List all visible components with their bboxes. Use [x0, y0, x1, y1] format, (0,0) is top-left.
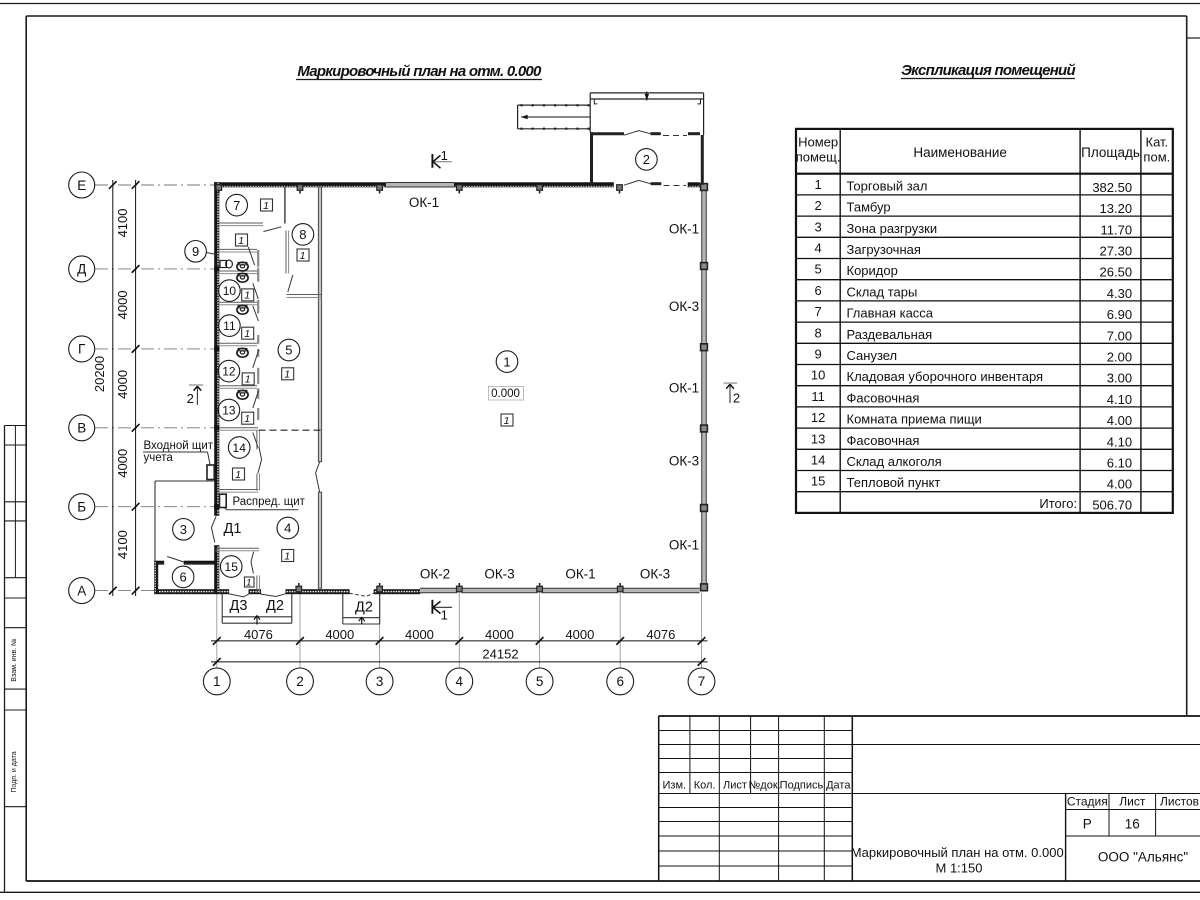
- svg-text:4100: 4100: [115, 208, 130, 237]
- svg-text:8: 8: [814, 325, 821, 340]
- svg-text:9: 9: [814, 347, 821, 362]
- svg-text:4000: 4000: [485, 627, 514, 642]
- svg-text:26.50: 26.50: [1100, 265, 1133, 280]
- svg-text:382.50: 382.50: [1092, 180, 1132, 195]
- svg-text:Фасовочная: Фасовочная: [847, 433, 920, 448]
- svg-text:пом.: пом.: [1143, 150, 1170, 165]
- svg-text:3.00: 3.00: [1107, 371, 1132, 386]
- svg-text:Р: Р: [1083, 817, 1092, 832]
- svg-text:Д2: Д2: [355, 600, 373, 616]
- svg-text:Стадия: Стадия: [1067, 795, 1108, 809]
- svg-text:4000: 4000: [115, 370, 130, 399]
- svg-text:ОК-1: ОК-1: [669, 222, 699, 237]
- svg-text:3: 3: [814, 219, 821, 234]
- svg-text:помещ.: помещ.: [796, 150, 841, 165]
- svg-text:1: 1: [441, 608, 448, 623]
- svg-text:4076: 4076: [244, 627, 273, 642]
- svg-text:1: 1: [238, 235, 244, 247]
- svg-text:учета: учета: [144, 452, 174, 464]
- svg-text:Наименование: Наименование: [913, 145, 1007, 160]
- svg-text:ОК-1: ОК-1: [565, 567, 595, 582]
- svg-text:ОК-3: ОК-3: [484, 567, 514, 582]
- svg-text:1: 1: [503, 354, 510, 369]
- svg-text:13.20: 13.20: [1100, 201, 1133, 216]
- svg-text:3: 3: [180, 522, 187, 537]
- svg-text:Маркировочный план на отм. 0.0: Маркировочный план на отм. 0.000,: [851, 845, 1068, 860]
- svg-text:1: 1: [441, 148, 448, 163]
- svg-text:Экспликация помещений: Экспликация помещений: [901, 62, 1075, 79]
- svg-text:Номер: Номер: [798, 135, 838, 150]
- svg-text:15: 15: [225, 560, 239, 574]
- svg-text:ОК-1: ОК-1: [669, 538, 699, 553]
- svg-text:Е: Е: [77, 178, 86, 193]
- svg-text:10: 10: [811, 368, 825, 383]
- svg-text:Склад тары: Склад тары: [847, 284, 918, 299]
- svg-text:М 1:150: М 1:150: [936, 861, 983, 876]
- svg-text:Комната приема пищи: Комната приема пищи: [847, 412, 982, 427]
- svg-text:ОК-1: ОК-1: [669, 381, 699, 396]
- svg-text:Изм.: Изм.: [663, 780, 687, 792]
- svg-text:Лист: Лист: [723, 780, 747, 792]
- svg-text:14: 14: [811, 453, 825, 468]
- svg-text:1: 1: [244, 413, 250, 425]
- svg-text:5: 5: [814, 262, 821, 277]
- svg-text:Раздевальная: Раздевальная: [847, 327, 933, 342]
- svg-text:4000: 4000: [405, 627, 434, 642]
- svg-text:9: 9: [192, 244, 199, 259]
- svg-text:4000: 4000: [565, 627, 594, 642]
- svg-text:Главная касса: Главная касса: [847, 306, 934, 321]
- svg-text:1: 1: [245, 374, 251, 386]
- svg-text:11: 11: [811, 389, 825, 404]
- svg-text:11: 11: [223, 319, 236, 333]
- svg-text:Тамбур: Тамбур: [847, 200, 891, 215]
- svg-text:15: 15: [811, 474, 825, 489]
- svg-text:ОК-3: ОК-3: [640, 567, 670, 582]
- svg-text:ОК-3: ОК-3: [669, 299, 699, 314]
- svg-text:Входной щит: Входной щит: [144, 440, 214, 452]
- svg-text:Г: Г: [78, 342, 86, 357]
- svg-text:16: 16: [1125, 817, 1140, 832]
- svg-text:Д3: Д3: [230, 598, 248, 614]
- svg-text:4.00: 4.00: [1107, 413, 1132, 428]
- svg-text:4100: 4100: [115, 530, 130, 559]
- svg-text:20200: 20200: [92, 356, 107, 392]
- svg-text:4.10: 4.10: [1107, 392, 1132, 407]
- svg-text:7.00: 7.00: [1107, 328, 1132, 343]
- svg-text:2: 2: [296, 674, 304, 689]
- svg-text:27.30: 27.30: [1100, 244, 1133, 259]
- svg-text:12: 12: [222, 364, 236, 378]
- svg-text:3: 3: [376, 674, 384, 689]
- svg-text:Подпись: Подпись: [780, 780, 824, 792]
- svg-text:2: 2: [814, 198, 821, 213]
- svg-text:1: 1: [284, 550, 290, 562]
- svg-text:6: 6: [616, 674, 624, 689]
- svg-text:В: В: [77, 421, 86, 436]
- svg-text:1: 1: [263, 200, 269, 212]
- svg-text:Д2: Д2: [266, 598, 284, 614]
- svg-text:Коридор: Коридор: [847, 263, 898, 278]
- svg-text:506.70: 506.70: [1092, 498, 1132, 513]
- svg-text:24152: 24152: [482, 647, 518, 662]
- svg-text:4000: 4000: [115, 449, 130, 478]
- svg-text:Зона разгрузки: Зона разгрузки: [847, 221, 938, 236]
- svg-text:2.00: 2.00: [1107, 350, 1132, 365]
- svg-text:4: 4: [456, 674, 464, 689]
- svg-text:Маркировочный план на отм. 0.0: Маркировочный план на отм. 0.000: [297, 63, 542, 80]
- svg-text:А: А: [77, 583, 86, 598]
- svg-text:Взам. инв. №: Взам. инв. №: [11, 638, 18, 681]
- svg-text:6: 6: [814, 283, 821, 298]
- svg-text:Санузел: Санузел: [847, 348, 898, 363]
- svg-text:Склад алкоголя: Склад алкоголя: [847, 454, 942, 469]
- svg-text:Подп. и дата: Подп. и дата: [11, 751, 18, 792]
- svg-text:6.10: 6.10: [1107, 456, 1132, 471]
- svg-text:2: 2: [733, 391, 740, 406]
- svg-text:13: 13: [222, 403, 236, 417]
- svg-text:1: 1: [284, 369, 290, 381]
- svg-text:Дата: Дата: [826, 780, 851, 792]
- svg-text:Распред. щит: Распред. щит: [233, 496, 306, 508]
- svg-text:4: 4: [814, 241, 821, 256]
- svg-text:1: 1: [246, 577, 251, 588]
- svg-text:Б: Б: [77, 500, 86, 515]
- svg-text:Д1: Д1: [224, 521, 242, 537]
- svg-text:12: 12: [811, 410, 825, 425]
- svg-text:2: 2: [643, 152, 650, 167]
- svg-text:4076: 4076: [646, 627, 675, 642]
- svg-text:2: 2: [187, 391, 194, 406]
- svg-text:Фасовочная: Фасовочная: [847, 390, 920, 405]
- svg-text:4000: 4000: [115, 290, 130, 319]
- svg-text:Кат.: Кат.: [1146, 135, 1169, 150]
- svg-text:Площадь: Площадь: [1081, 145, 1140, 160]
- svg-text:5: 5: [285, 343, 292, 358]
- svg-text:0.000: 0.000: [491, 388, 520, 400]
- svg-text:6: 6: [179, 570, 186, 585]
- svg-text:Кладовая уборочного инвентаря: Кладовая уборочного инвентаря: [847, 369, 1044, 384]
- svg-text:Загрузочная: Загрузочная: [847, 242, 921, 257]
- svg-text:Листов: Листов: [1160, 795, 1199, 809]
- svg-text:1: 1: [244, 328, 250, 340]
- svg-text:6.90: 6.90: [1107, 307, 1132, 322]
- svg-text:8: 8: [299, 227, 306, 242]
- svg-text:5: 5: [536, 674, 544, 689]
- svg-text:Тепловой пункт: Тепловой пункт: [847, 475, 941, 490]
- svg-text:Итого:: Итого:: [1039, 496, 1077, 511]
- svg-text:ОК-3: ОК-3: [669, 454, 699, 469]
- svg-text:Кол.: Кол.: [694, 780, 716, 792]
- svg-text:Лист: Лист: [1119, 795, 1146, 809]
- svg-text:1: 1: [235, 469, 241, 481]
- svg-text:4000: 4000: [325, 627, 354, 642]
- svg-text:13: 13: [811, 431, 825, 446]
- svg-text:ООО "Альянс": ООО "Альянс": [1098, 850, 1188, 865]
- svg-text:4.10: 4.10: [1107, 434, 1132, 449]
- svg-text:11.70: 11.70: [1101, 222, 1133, 237]
- svg-text:10: 10: [223, 284, 237, 298]
- svg-text:ОК-2: ОК-2: [420, 567, 450, 582]
- svg-text:ОК-1: ОК-1: [409, 195, 439, 210]
- svg-text:1: 1: [244, 290, 250, 302]
- svg-text:7: 7: [814, 304, 821, 319]
- svg-text:№док.: №док.: [748, 780, 780, 792]
- svg-text:1: 1: [504, 415, 510, 427]
- svg-text:Торговый зал: Торговый зал: [847, 178, 928, 193]
- svg-text:Д: Д: [77, 262, 86, 277]
- svg-text:14: 14: [233, 441, 247, 455]
- svg-text:1: 1: [814, 177, 821, 192]
- svg-text:4.30: 4.30: [1107, 286, 1132, 301]
- svg-text:4.00: 4.00: [1107, 477, 1132, 492]
- svg-text:7: 7: [233, 198, 240, 213]
- svg-text:1: 1: [213, 674, 221, 689]
- svg-text:4: 4: [284, 521, 291, 536]
- svg-text:1: 1: [300, 250, 306, 262]
- svg-text:7: 7: [698, 674, 706, 689]
